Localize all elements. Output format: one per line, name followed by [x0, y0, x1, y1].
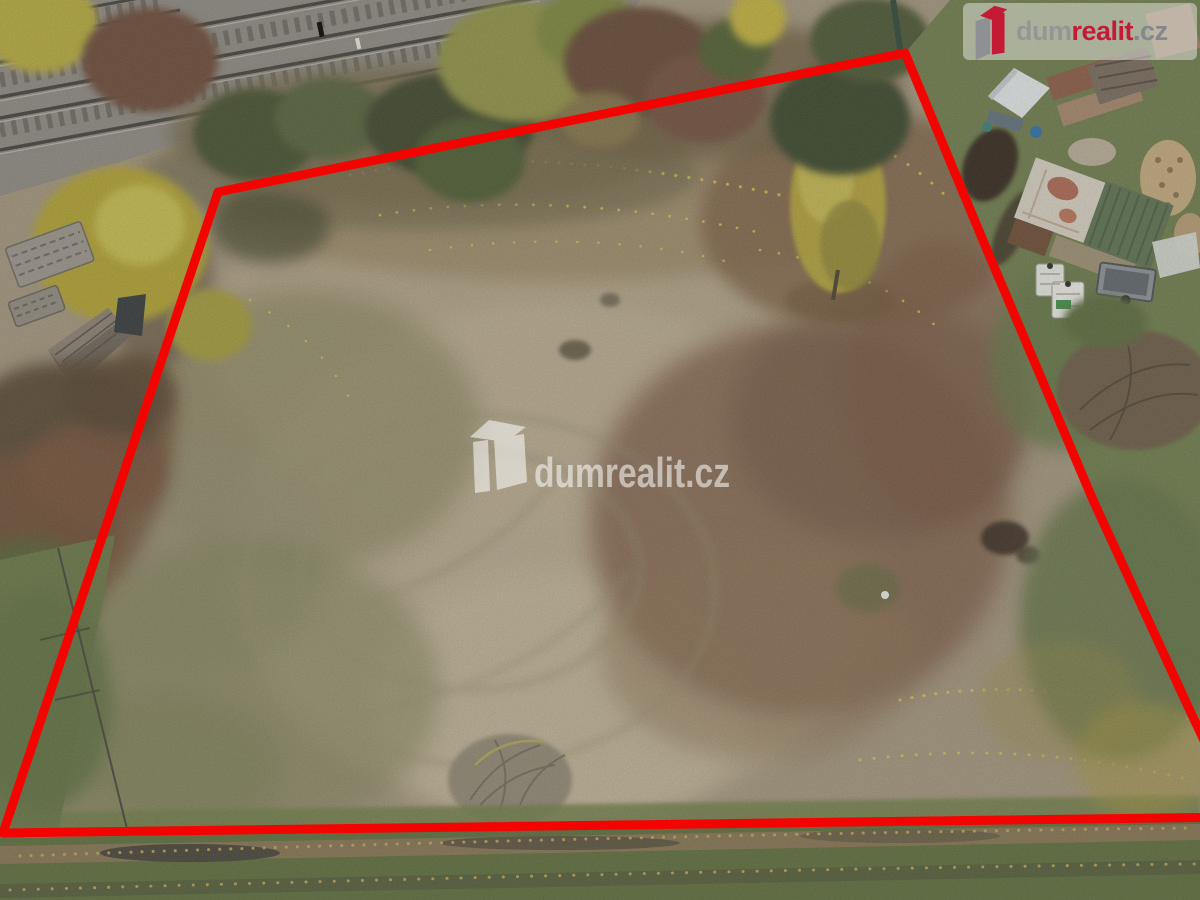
logo-text-realit: realit: [1072, 16, 1134, 46]
logo-text-dum: dum: [1016, 16, 1072, 46]
logo-icon: [973, 4, 1009, 60]
logo-text: dumrealit.cz: [1016, 16, 1168, 47]
aerial-photo: dumrealit.cz dumrealit.cz: [0, 0, 1200, 900]
watermark-logo-icon: [470, 420, 527, 493]
watermark-text: dumrealit.cz: [534, 449, 730, 496]
aerial-photo-canvas: dumrealit.cz: [0, 0, 1200, 900]
logo-badge: dumrealit.cz: [963, 3, 1197, 60]
logo-text-cz: .cz: [1133, 16, 1168, 46]
